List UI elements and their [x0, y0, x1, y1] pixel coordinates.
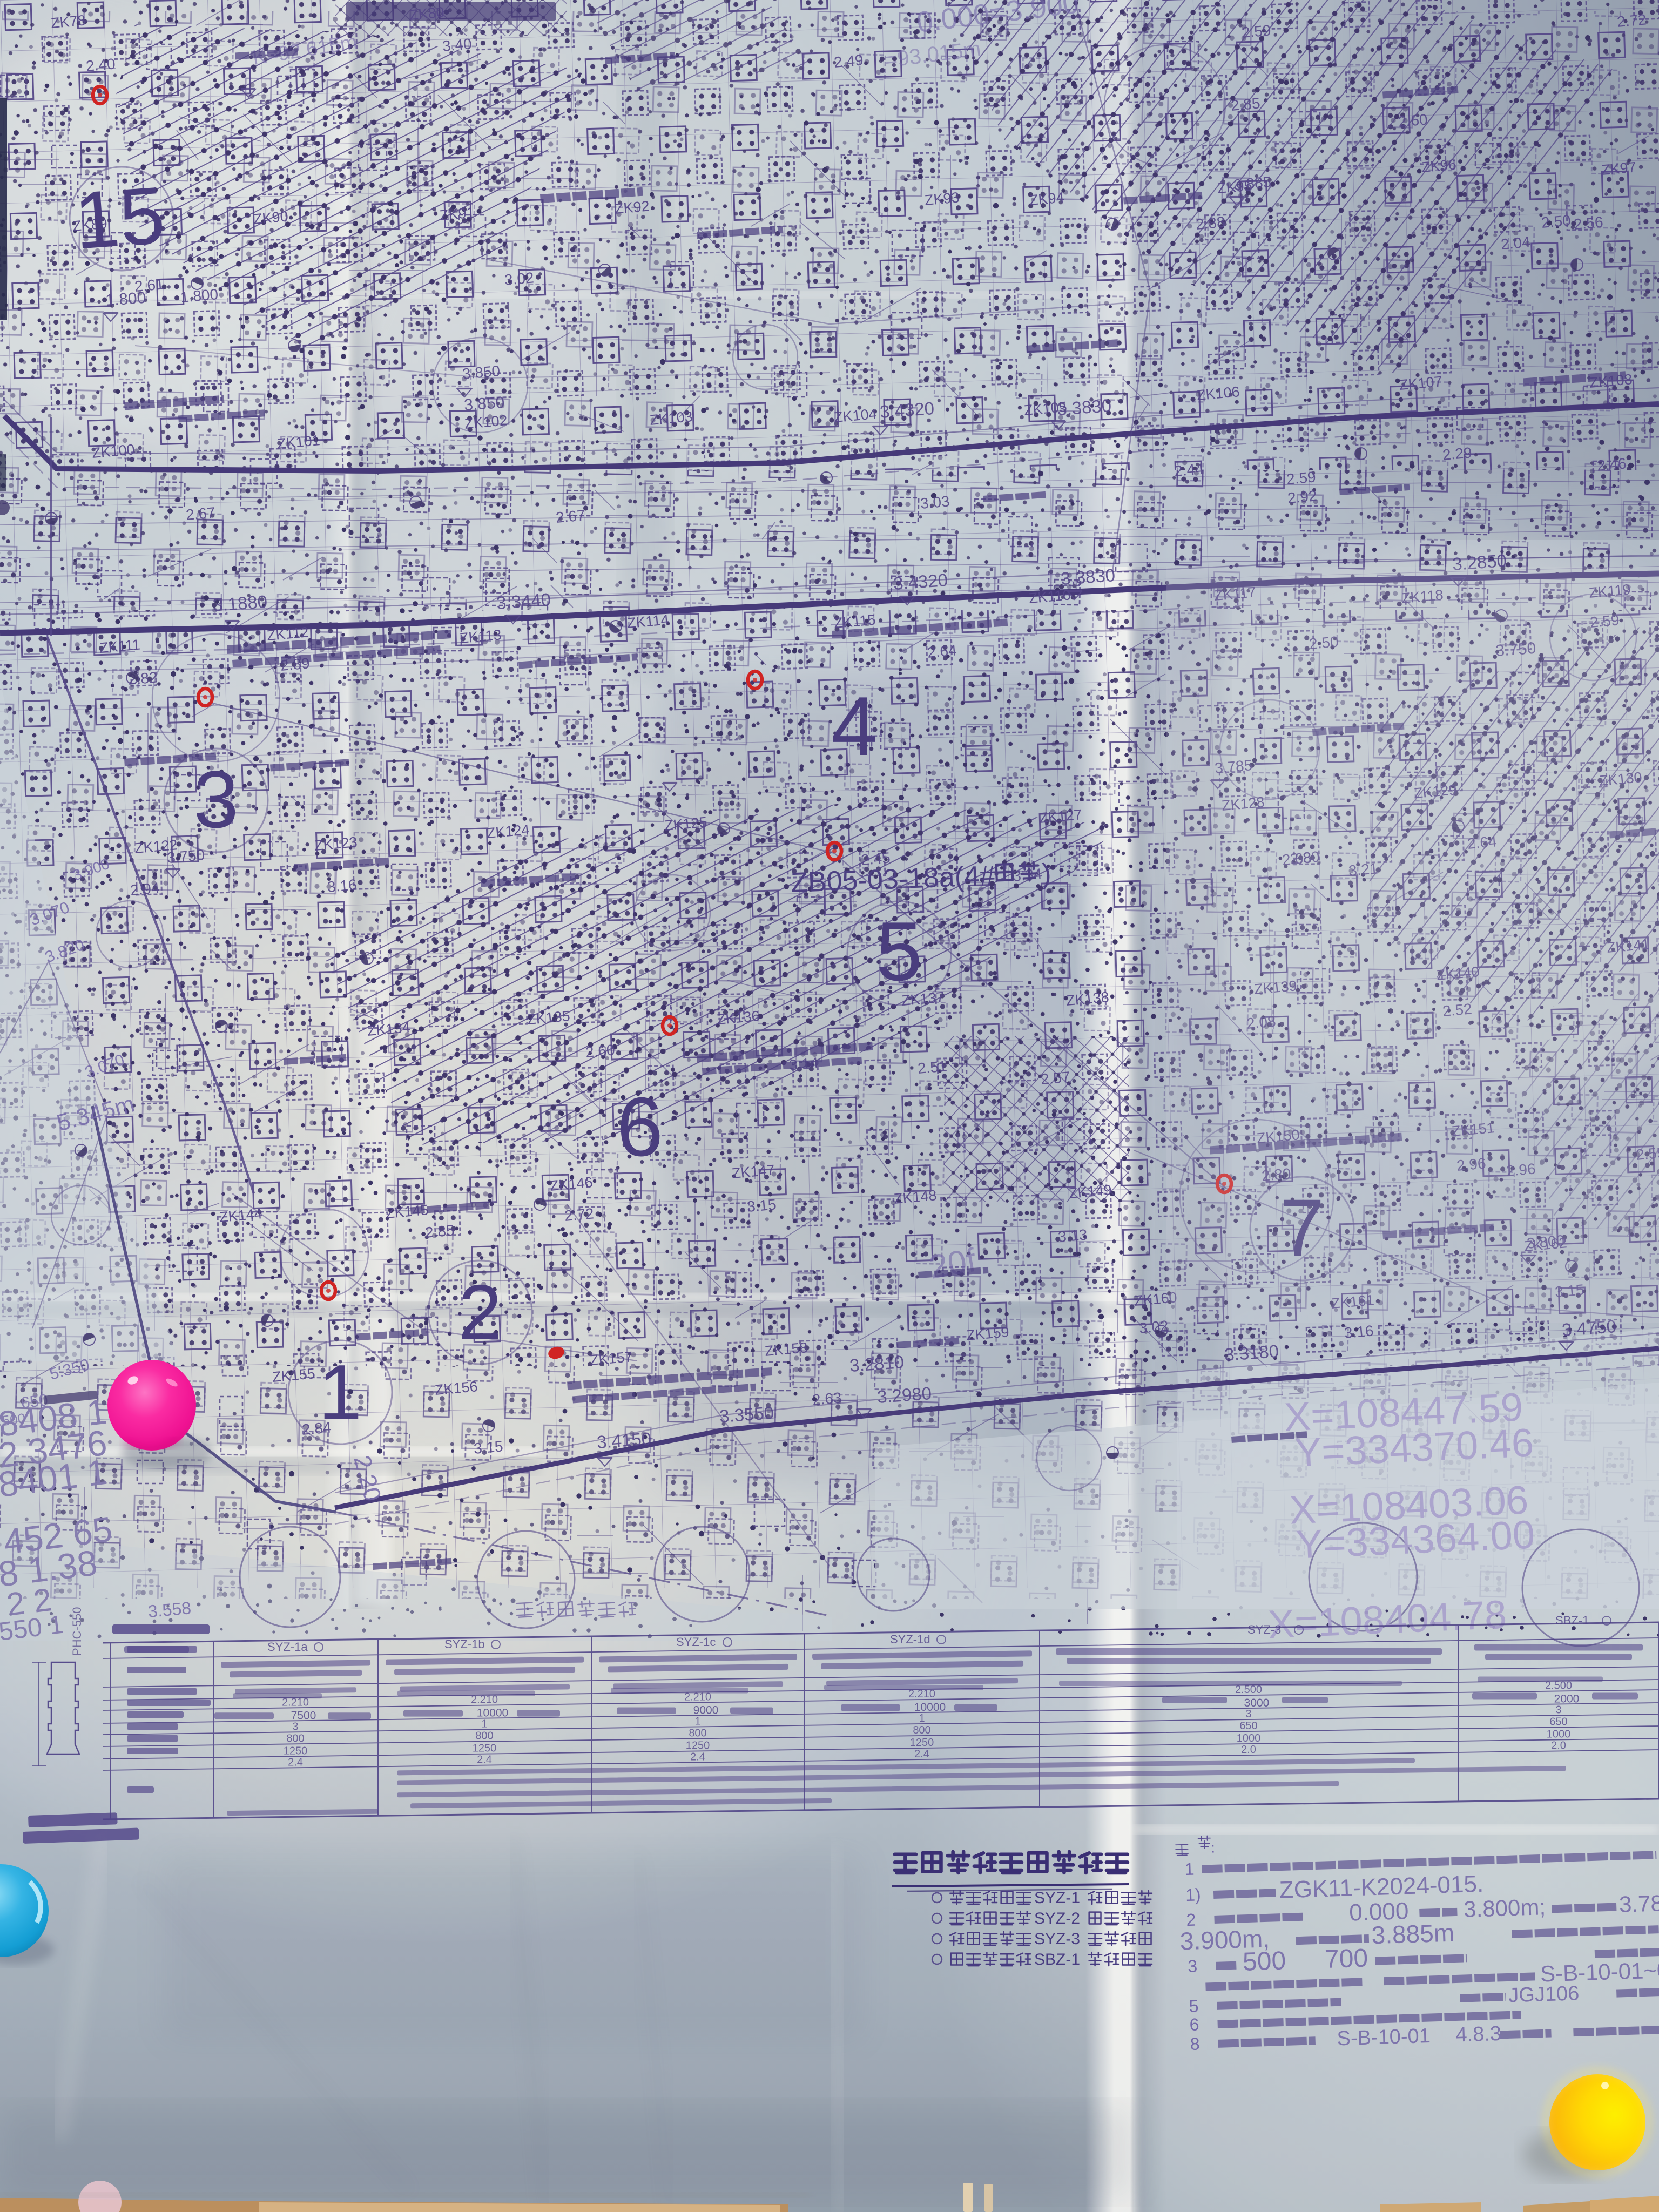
svg-text:3: 3 [1188, 1956, 1198, 1976]
svg-text:SYZ-2: SYZ-2 [1034, 1910, 1080, 1927]
svg-text:3: 3 [1245, 1708, 1251, 1720]
svg-text:SYZ-1a: SYZ-1a [267, 1640, 308, 1654]
svg-text:1: 1 [481, 1718, 487, 1730]
svg-text:2.4: 2.4 [288, 1756, 303, 1768]
svg-text:500: 500 [1242, 1946, 1286, 1976]
svg-text:SYZ-1b: SYZ-1b [444, 1637, 485, 1651]
svg-text:2.4: 2.4 [914, 1748, 929, 1760]
svg-text:SYZ-1: SYZ-1 [1034, 1889, 1080, 1907]
svg-text:3.885m: 3.885m [1371, 1919, 1455, 1950]
svg-text:1: 1 [694, 1715, 700, 1727]
svg-text:7500: 7500 [291, 1709, 316, 1722]
svg-text:2.0: 2.0 [1551, 1739, 1566, 1751]
svg-text:3000: 3000 [1244, 1697, 1270, 1709]
svg-text:1): 1) [1185, 1885, 1202, 1905]
svg-text:8: 8 [1190, 2034, 1200, 2054]
svg-text:700: 700 [1324, 1944, 1368, 1974]
svg-text:6: 6 [1189, 2014, 1199, 2034]
svg-text:650: 650 [1549, 1716, 1567, 1728]
svg-text:SYZ-3: SYZ-3 [1247, 1623, 1281, 1636]
svg-text:10000: 10000 [914, 1701, 946, 1714]
svg-text:S-B-10-01: S-B-10-01 [1337, 2025, 1431, 2050]
svg-text:1250: 1250 [473, 1743, 497, 1755]
svg-text:2.4: 2.4 [477, 1754, 492, 1766]
svg-text:2.0: 2.0 [1241, 1744, 1256, 1756]
svg-text:3.785m;: 3.785m; [1618, 1889, 1659, 1917]
svg-text:3.800m;: 3.800m; [1463, 1894, 1546, 1922]
svg-text:800: 800 [913, 1724, 930, 1736]
svg-text:3: 3 [292, 1721, 298, 1732]
svg-text:650: 650 [1239, 1720, 1257, 1732]
svg-text:4.8.3: 4.8.3 [1455, 2022, 1502, 2047]
svg-text:5: 5 [1189, 1996, 1199, 2016]
svg-text:9000: 9000 [693, 1704, 719, 1716]
svg-text:1: 1 [1184, 1859, 1195, 1879]
svg-text:1000: 1000 [1547, 1728, 1571, 1740]
svg-text:1000: 1000 [1237, 1732, 1261, 1744]
svg-text:SBZ-1: SBZ-1 [1555, 1614, 1589, 1627]
svg-text:3: 3 [1555, 1704, 1561, 1716]
svg-text:500: 500 [1, 1410, 26, 1429]
svg-text:1: 1 [919, 1712, 925, 1724]
svg-text:S-B-10-01~02.: S-B-10-01~02. [1540, 1957, 1659, 1987]
svg-text:800: 800 [286, 1732, 304, 1744]
svg-text:2.4: 2.4 [690, 1751, 705, 1763]
svg-text:800: 800 [475, 1730, 493, 1742]
svg-text::: : [1211, 1839, 1215, 1856]
svg-text:PHC-550: PHC-550 [70, 1607, 84, 1656]
svg-text:800: 800 [689, 1727, 706, 1739]
svg-text:SBZ-1: SBZ-1 [1034, 1951, 1080, 1968]
svg-text:1250: 1250 [284, 1745, 308, 1757]
svg-text:SYZ-1c: SYZ-1c [676, 1635, 716, 1649]
svg-text:SYZ-1d: SYZ-1d [890, 1633, 930, 1646]
svg-text:10000: 10000 [477, 1707, 508, 1719]
svg-text:SYZ-3: SYZ-3 [1034, 1930, 1080, 1948]
svg-text:1250: 1250 [686, 1739, 710, 1751]
svg-text:1250: 1250 [910, 1737, 934, 1749]
svg-text:2000: 2000 [1554, 1692, 1580, 1705]
svg-text:JGJ106: JGJ106 [1508, 1982, 1580, 2007]
